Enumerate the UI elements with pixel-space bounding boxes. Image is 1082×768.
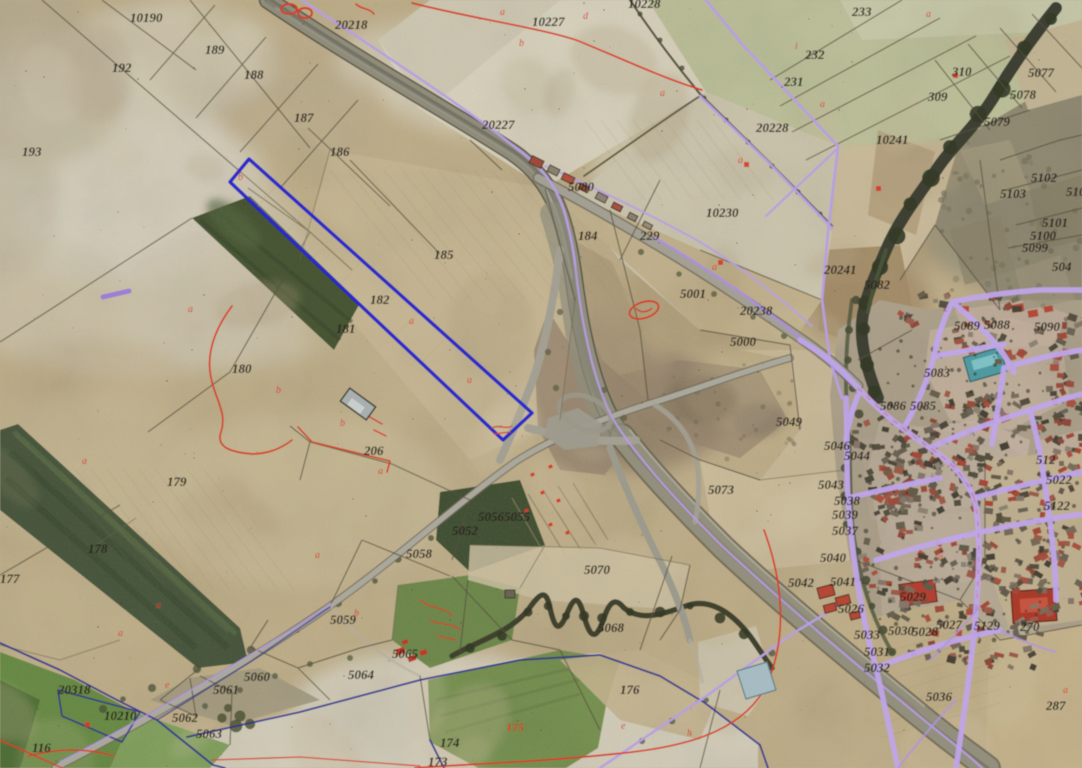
svg-text:5043: 5043 xyxy=(818,477,845,492)
svg-text:5029: 5029 xyxy=(900,589,927,604)
svg-text:309: 309 xyxy=(927,89,948,104)
svg-text:10210: 10210 xyxy=(104,708,137,723)
svg-text:5037: 5037 xyxy=(832,523,859,538)
svg-text:10230: 10230 xyxy=(706,205,739,220)
svg-text:5031: 5031 xyxy=(864,644,890,659)
svg-text:5049: 5049 xyxy=(776,414,803,429)
svg-text:10190: 10190 xyxy=(130,10,163,25)
svg-text:20228: 20228 xyxy=(755,120,789,135)
svg-text:192: 192 xyxy=(112,60,132,75)
svg-text:20227: 20227 xyxy=(481,117,515,132)
svg-text:5022: 5022 xyxy=(1046,472,1073,487)
svg-text:5099: 5099 xyxy=(1022,240,1049,255)
svg-text:a: a xyxy=(712,262,717,273)
svg-text:5086: 5086 xyxy=(880,398,907,413)
svg-text:270: 270 xyxy=(1019,619,1040,634)
svg-text:229: 229 xyxy=(639,228,660,243)
svg-text:5000: 5000 xyxy=(730,334,757,349)
svg-text:512: 512 xyxy=(1036,452,1056,467)
svg-text:179: 179 xyxy=(167,474,187,489)
svg-text:231: 231 xyxy=(783,74,804,89)
svg-text:5001: 5001 xyxy=(680,286,706,301)
svg-text:5039: 5039 xyxy=(832,507,859,522)
svg-text:5063: 5063 xyxy=(196,726,223,741)
svg-text:a: a xyxy=(378,466,383,477)
svg-text:5088: 5088 xyxy=(984,317,1011,332)
svg-text:e: e xyxy=(165,680,170,691)
svg-text:5077: 5077 xyxy=(1028,65,1055,80)
svg-text:a: a xyxy=(1063,685,1068,696)
svg-text:180: 180 xyxy=(232,361,252,376)
svg-text:184: 184 xyxy=(578,228,598,243)
svg-text:186: 186 xyxy=(330,144,350,159)
svg-text:b: b xyxy=(340,418,345,429)
svg-text:5028: 5028 xyxy=(912,624,939,639)
svg-text:5044: 5044 xyxy=(844,448,871,463)
svg-text:175: 175 xyxy=(506,720,524,734)
svg-text:5061: 5061 xyxy=(213,682,239,697)
svg-text:b: b xyxy=(519,38,524,49)
svg-text:5073: 5073 xyxy=(708,482,735,497)
svg-text:a: a xyxy=(315,550,320,561)
svg-text:5027: 5027 xyxy=(936,617,963,632)
svg-text:5083: 5083 xyxy=(924,365,951,380)
svg-text:5036: 5036 xyxy=(926,689,953,704)
svg-text:5038: 5038 xyxy=(834,493,861,508)
svg-text:181: 181 xyxy=(336,321,356,336)
svg-text:5064: 5064 xyxy=(348,667,375,682)
svg-text:20318: 20318 xyxy=(57,682,91,697)
svg-text:20238: 20238 xyxy=(739,303,773,318)
svg-text:a: a xyxy=(738,155,743,166)
svg-text:10227: 10227 xyxy=(532,14,565,29)
svg-text:5068: 5068 xyxy=(598,620,625,635)
svg-text:5059: 5059 xyxy=(330,612,357,627)
svg-text:5122: 5122 xyxy=(1044,498,1071,513)
svg-text:a: a xyxy=(820,99,825,110)
svg-text:504: 504 xyxy=(1052,259,1072,274)
svg-text:232: 232 xyxy=(804,47,825,62)
svg-text:182: 182 xyxy=(370,292,390,307)
svg-text:10241: 10241 xyxy=(876,132,909,147)
svg-text:189: 189 xyxy=(205,42,225,57)
svg-text:5078: 5078 xyxy=(1010,87,1037,102)
svg-text:5032: 5032 xyxy=(864,660,891,675)
svg-text:5103: 5103 xyxy=(1000,186,1027,201)
svg-text:510: 510 xyxy=(1066,184,1082,199)
svg-text:5030: 5030 xyxy=(888,623,915,638)
svg-text:5090: 5090 xyxy=(1034,319,1061,334)
svg-text:a: a xyxy=(467,375,472,386)
svg-text:206: 206 xyxy=(363,443,384,458)
svg-text:a: a xyxy=(409,316,414,327)
svg-text:a: a xyxy=(118,628,123,639)
svg-text:i: i xyxy=(795,41,798,52)
svg-text:5041: 5041 xyxy=(830,574,856,589)
svg-text:20241: 20241 xyxy=(823,262,857,277)
svg-text:5033: 5033 xyxy=(854,627,881,642)
svg-text:5102: 5102 xyxy=(1031,170,1058,185)
svg-text:233: 233 xyxy=(851,4,872,19)
svg-text:5052: 5052 xyxy=(452,523,479,538)
svg-text:5079: 5079 xyxy=(984,114,1011,129)
svg-text:b: b xyxy=(238,172,243,183)
svg-text:185: 185 xyxy=(434,247,454,262)
svg-text:a: a xyxy=(188,304,193,315)
svg-text:5080: 5080 xyxy=(568,179,595,194)
svg-text:174: 174 xyxy=(440,735,460,750)
svg-text:5058: 5058 xyxy=(406,546,433,561)
svg-text:5089: 5089 xyxy=(954,318,981,333)
svg-text:173: 173 xyxy=(428,754,448,768)
svg-text:188: 188 xyxy=(244,67,264,82)
svg-text:187: 187 xyxy=(294,110,314,125)
svg-text:a: a xyxy=(156,600,161,611)
svg-text:5062: 5062 xyxy=(172,710,199,725)
svg-text:5085: 5085 xyxy=(910,398,937,413)
svg-text:10228: 10228 xyxy=(628,0,661,11)
svg-text:5060: 5060 xyxy=(244,669,271,684)
svg-text:116: 116 xyxy=(32,740,51,755)
svg-text:176: 176 xyxy=(620,682,640,697)
svg-text:287: 287 xyxy=(1045,698,1066,713)
svg-text:5026: 5026 xyxy=(838,601,865,616)
svg-text:20218: 20218 xyxy=(334,17,368,32)
svg-text:a: a xyxy=(926,9,931,20)
svg-text:310: 310 xyxy=(951,64,972,79)
svg-text:e: e xyxy=(621,721,626,732)
svg-text:5042: 5042 xyxy=(788,575,815,590)
svg-text:177: 177 xyxy=(0,571,20,586)
svg-text:5040: 5040 xyxy=(820,550,847,565)
svg-text:5055: 5055 xyxy=(504,509,531,524)
svg-text:5056: 5056 xyxy=(478,509,505,524)
svg-text:a: a xyxy=(660,88,665,99)
svg-text:b: b xyxy=(276,385,281,396)
svg-text:178: 178 xyxy=(88,541,108,556)
svg-text:5129: 5129 xyxy=(974,618,1001,633)
svg-text:193: 193 xyxy=(22,144,42,159)
svg-text:a: a xyxy=(500,7,505,18)
svg-text:5070: 5070 xyxy=(584,562,611,577)
svg-text:5082: 5082 xyxy=(864,277,891,292)
